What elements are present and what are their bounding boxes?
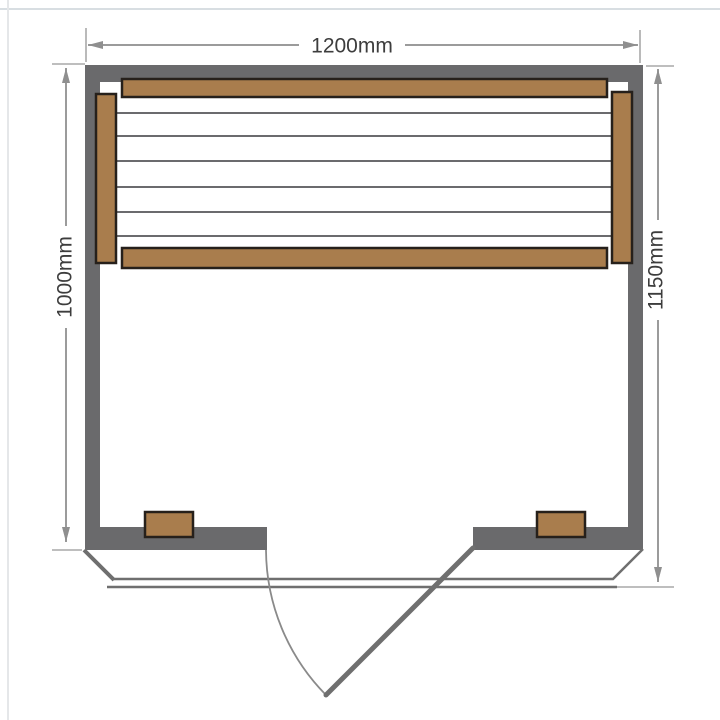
dim-arrow-down: [62, 527, 70, 542]
image-border-left: [7, 0, 9, 720]
heater-block-right: [537, 512, 585, 537]
heater-block-left: [145, 512, 193, 537]
bench-right-rail: [612, 92, 632, 263]
dim-arrow-up: [62, 68, 70, 83]
bench-left-rail: [96, 94, 116, 263]
dim-arrow-right: [623, 41, 638, 49]
bench: [96, 79, 632, 268]
image-border-top: [0, 8, 720, 10]
dim-depth-left-label: 1000mm: [54, 236, 77, 318]
dim-arrow-up: [654, 69, 662, 84]
sauna-floorplan-diagram: 1200mm 1000mm 1150mm: [0, 0, 720, 720]
door-swing-arc: [266, 550, 326, 695]
bench-bottom-rail: [122, 248, 607, 268]
front-panel-upper-line: [85, 549, 643, 579]
dimension-depth-left: 1000mm: [52, 64, 85, 550]
dimension-width: 1200mm: [86, 28, 640, 63]
dim-arrow-down: [654, 567, 662, 582]
dim-depth-right-label: 1150mm: [645, 230, 668, 310]
dim-width-label: 1200mm: [311, 35, 393, 58]
bench-top-rail: [122, 79, 607, 97]
front-corner-left-line: [84, 550, 114, 580]
floorplan-canvas: 1200mm 1000mm 1150mm: [0, 0, 720, 720]
door-leaf-line: [326, 548, 473, 695]
dim-arrow-left: [88, 41, 103, 49]
